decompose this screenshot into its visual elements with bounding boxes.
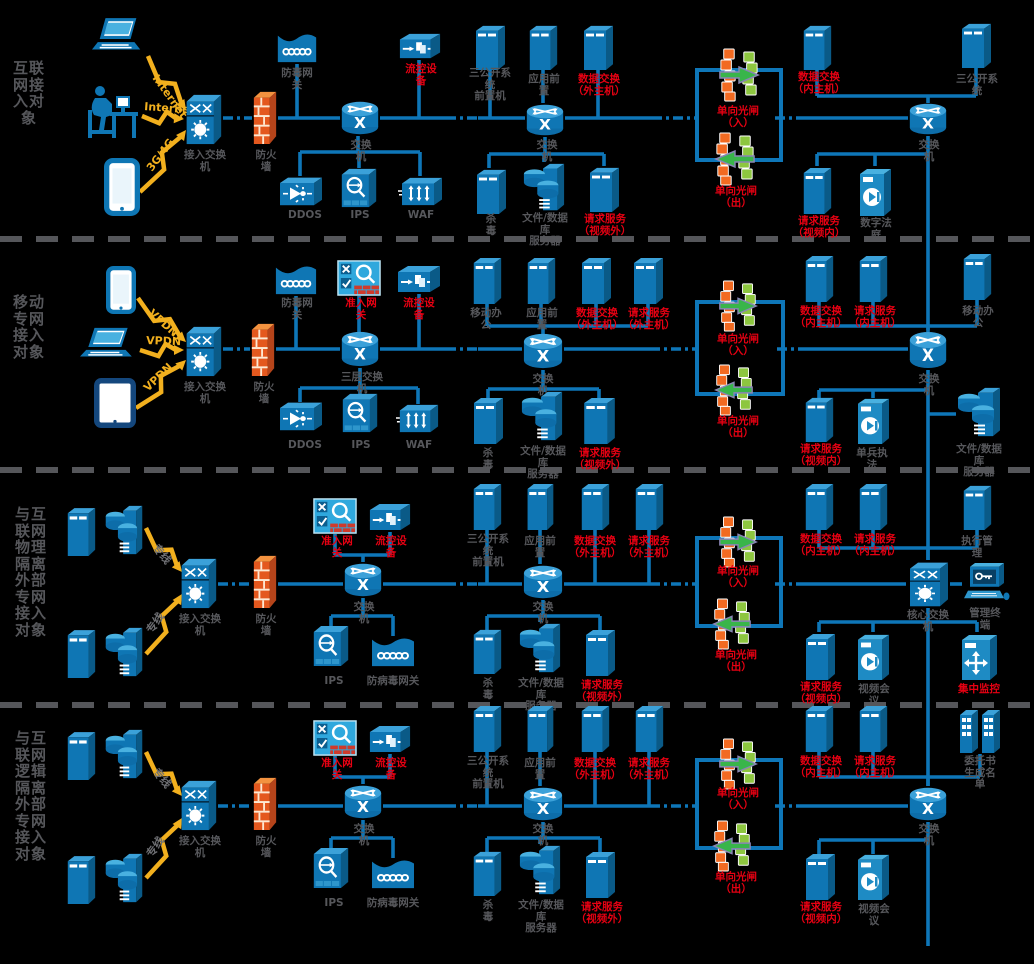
switch-2c-label: 交换机 [914,374,944,397]
server-icon [470,256,504,304]
access-switch-4 [178,778,218,832]
db-server-1-label: 文件/数据库服务器 [514,213,576,248]
tablet-2 [94,378,136,428]
flowctl-icon [368,724,412,754]
twinserver-icon [958,708,1002,754]
one-way-gate-out-2 [714,364,754,416]
one-way-gate-out-3-label: 单向光闸（出） [698,650,774,673]
server-request-out-2-label: 请求服务（外主机） [614,308,684,331]
media-icon [854,852,892,900]
router-icon: X [343,562,383,598]
server-data-exchange-out-1-label: 数据交换（外主机） [564,74,634,97]
phone-1 [104,158,140,216]
one-way-gate-in-2-label: 单向光闸（入） [700,334,776,357]
server-request-in-4-label: 请求服务（内主机） [840,756,910,779]
firewall-icon [250,322,276,376]
router-icon: X [908,330,948,370]
server-icon [64,854,98,904]
server-mobile-office-r-2-label: 移动办公 [956,306,1000,329]
server-data-exchange-in-4 [802,704,836,752]
media-icon [854,396,892,444]
switch-1a: X [340,100,380,136]
router-icon: X [522,332,564,370]
server-request-in-4 [856,704,890,752]
db-server-4-label: 文件/数据库服务器 [510,900,572,935]
server-antivirus-4 [470,850,504,896]
server-icon [856,482,890,530]
dbserver-icon [104,504,144,558]
laptop-2 [80,326,138,368]
server-data-exchange-out-4 [578,704,612,752]
server-app-front-3 [524,482,556,530]
server-icon [578,482,612,530]
access-switch-4-label: 接入交换机 [172,836,228,859]
workstation-user-1 [88,84,142,142]
ips-1-label: IPS [348,210,372,222]
svg-text:X: X [922,800,934,818]
server-icon [470,482,504,530]
server-icon [856,704,890,752]
server-icon [578,704,612,752]
firewall-1-label: 防火墙 [248,150,284,173]
server-data-exchange-out-1 [580,24,616,70]
flow-control-4 [368,724,412,754]
server-antivirus-3-label: 杀毒 [480,678,496,701]
router-icon: X [525,103,565,137]
firewall-1 [252,90,278,144]
one-way-gate-in-1-label: 单向光闸（入） [700,106,776,129]
access-switch-3-label: 接入交换机 [172,614,228,637]
router-icon: X [340,100,380,136]
flowctl-icon [398,32,442,60]
server-icon [64,628,98,678]
server-app-front-4 [524,704,556,752]
media-server-digital-court-1-label: 数字法庭 [854,218,898,241]
firewall-4 [252,776,278,830]
svg-text:X: X [354,114,366,132]
server-request-out-3-label: 请求服务（外主机） [614,536,684,559]
ips-4-label: IPS [322,898,346,910]
firewall-icon [252,90,278,144]
one-way-gate-out-1 [714,132,756,186]
server-app-front-1-label: 应用前置 [522,74,566,97]
server-app-front-2 [524,256,558,304]
server-request-video-in-3-label: 请求服务（视频内） [786,682,856,705]
server-icon [524,704,556,752]
media-server-digital-court-1 [856,166,894,216]
gateout-icon [714,132,756,186]
server-icon [960,484,994,530]
server-icon [526,24,560,70]
laptop-1 [92,16,146,62]
server-icon [856,254,890,302]
server-icon [582,850,618,898]
laptop-icon [80,326,138,368]
server-b-3 [64,628,98,678]
server-data-exchange-in-1-label: 数据交换（内主机） [784,72,854,95]
svg-text:X: X [357,798,369,816]
server-data-exchange-in-2 [802,254,836,302]
monitorbox-icon [958,632,1000,680]
media-server-video-conf-3 [854,632,892,680]
dbserver-icon [104,852,144,906]
server-icon [524,256,558,304]
ddos-1 [278,175,324,207]
svg-text:X: X [922,345,934,365]
server-icon [580,24,616,70]
db-server-a-3 [104,504,144,558]
av-gateway-1-label: 防毒网关 [272,68,322,91]
server-request-video-out-2 [580,396,618,444]
server-mobile-office-2-label: 移动办公 [464,308,508,331]
server-icon [630,256,666,304]
one-way-gate-out-4 [712,820,752,872]
server-icon [802,396,836,442]
server-icon [580,396,618,444]
one-way-gate-out-2-label: 单向光闸（出） [700,416,776,439]
server-icon [802,482,836,530]
server-data-exchange-in-1 [800,24,834,70]
dbserver-icon [518,622,562,676]
server-icon [64,730,98,780]
admgw-icon [313,720,357,756]
server-antivirus-1-label: 杀毒 [483,214,499,237]
flow-control-4-label: 流控设备 [366,758,416,781]
svg-text:X: X [537,577,550,595]
router-icon: X [522,564,564,600]
access-switch-2-label: 接入交换机 [177,382,233,405]
router-icon: X [340,330,380,368]
db-server-1 [522,162,566,214]
server-request-out-4-label: 请求服务（外主机） [614,758,684,781]
svg-text:X: X [354,344,366,363]
media-server-solo-enforce-2-label: 单兵执法 [850,448,894,471]
one-way-gate-in-2 [718,280,758,332]
aswitch-icon [183,92,223,146]
av-gateway-4 [370,856,416,890]
flow-control-1 [398,32,442,60]
gatein-icon [718,48,760,102]
server-icon [802,852,838,900]
switch-3a: X [343,562,383,598]
avgw-icon [370,856,416,890]
aswitch-icon [178,556,218,610]
ddos-1-label: DDOS [288,210,316,222]
gatein-icon [718,738,758,790]
one-way-gate-out-1-label: 单向光闸（出） [698,186,774,209]
phone-icon [104,158,140,216]
dbserver-icon [104,728,144,782]
waf-2 [396,402,440,434]
waf-1-label: WAF [406,210,436,222]
server-request-video-in-2 [802,396,836,442]
db-server-b-3 [104,626,144,680]
server-request-video-out-3-label: 请求服务（视频外） [566,680,638,703]
ddos-2-label: DDOS [288,440,316,452]
ips-3 [312,624,350,668]
firewall-2 [250,322,276,376]
db-server-4 [518,844,562,898]
one-way-gate-in-1 [718,48,760,102]
server-b-4 [64,854,98,904]
server-icon [470,396,506,444]
tablet-icon [94,378,136,428]
server-icon [802,254,836,302]
server-request-in-3-label: 请求服务（内主机） [840,534,910,557]
server-antivirus-1 [473,168,509,214]
av-gateway-4-label: 防病毒网关 [356,898,430,910]
gatein-icon [718,516,758,568]
waf-icon [398,175,444,207]
router-icon: X [343,784,383,820]
server-icon [473,168,509,214]
server-sgk-front-3-label: 三公开系统前置机 [462,534,514,569]
server-app-front-2-label: 应用前置 [520,308,564,331]
av-gateway-3-label: 防病毒网关 [356,676,430,688]
central-monitor-3-label: 集中监控 [950,684,1008,696]
avgw-icon [370,634,416,668]
access-switch-3 [178,556,218,610]
server-request-video-out-4 [582,850,618,898]
one-way-gate-in-4 [718,738,758,790]
server-icon [472,24,508,70]
av-gateway-2-label: 防毒网关 [272,298,322,321]
media-server-video-conf-4-label: 视频会议 [852,904,896,927]
server-icon [632,482,666,530]
server-icon [960,252,994,300]
switch-4a: X [343,784,383,820]
media-server-solo-enforce-2 [854,396,892,444]
one-way-gate-in-3 [718,516,758,568]
zone-label-internet: 互联网接入对象 [10,60,48,126]
server-request-out-3 [632,482,666,530]
server-app-front-3-label: 应用前置 [518,536,562,559]
server-icon [802,632,838,680]
one-way-gate-out-3 [712,598,752,650]
dbserver-icon [520,390,564,444]
core-switch-3-label: 核心交换机 [898,610,958,633]
phone-2 [106,266,136,314]
firewall-2-label: 防火墙 [246,382,282,405]
aswitch-icon [178,778,218,832]
svg-text:X: X [537,346,550,365]
one-way-gate-in-3-label: 单向光闸（入） [700,566,776,589]
coreswitch-icon [906,560,950,608]
server-icon [802,704,836,752]
firewall-4-label: 防火墙 [248,836,284,859]
core-switch-3 [906,560,950,608]
flowctl-icon [368,502,412,532]
switch-1b: X [525,103,565,137]
switch-2b: X [522,332,564,370]
ddos-2 [278,400,324,432]
server-a-3 [64,506,98,556]
server-request-video-out-1-label: 请求服务（视频外） [570,214,640,237]
access-switch-1-label: 接入交换机 [177,150,233,173]
server-antivirus-3 [470,628,504,674]
flow-control-1-label: 流控设备 [396,64,446,87]
flow-control-2 [396,264,442,294]
dbserver-icon [518,844,562,898]
switch-4c-label: 交换机 [914,824,944,847]
ips-2 [341,392,379,434]
server-request-out-4 [632,704,666,752]
server-request-video-in-4 [802,852,838,900]
db-server-r-2 [956,386,1002,440]
gateout-icon [712,820,752,872]
gatein-icon [718,280,758,332]
svg-text:X: X [357,576,369,594]
dbserver-icon [956,386,1002,440]
server-mobile-office-r-2 [960,252,994,300]
flowctl-icon [396,264,442,294]
admgw-icon [313,498,357,534]
flow-control-3-label: 流控设备 [366,536,416,559]
server-request-video-out-4-label: 请求服务（视频外） [566,902,638,925]
db-server-b-4 [104,852,144,906]
admission-gateway-2-label: 准入网关 [338,298,384,321]
server-sgk-front-3 [470,482,504,530]
server-request-in-2-label: 请求服务（内主机） [840,306,910,329]
server-request-video-in-3 [802,632,838,680]
server-antivirus-2-label: 杀毒 [480,448,496,471]
server-request-in-2 [856,254,890,302]
router-icon: X [908,102,948,136]
avgw-icon [276,30,318,64]
central-monitor-3 [958,632,1000,680]
terminal-icon [962,562,1010,602]
server-icon [800,24,834,70]
zone-label-physical-isolated: 与互联网物理隔离外部专网接入对象 [12,506,50,638]
firewall-icon [252,776,278,830]
switch-4c: X [908,786,948,822]
server-app-front-1 [526,24,560,70]
server-icon [582,628,618,676]
server-a-4 [64,730,98,780]
ips-icon [312,624,350,668]
server-sgk-front-4-label: 三公开系统前置机 [462,756,514,791]
zone-label-mobile-vpn: 移动专网接入对象 [10,294,48,360]
server-mobile-office-2 [470,256,504,304]
mgmt-terminal-3 [962,562,1010,602]
avgw-icon [274,262,318,296]
admission-gateway-4 [313,720,357,756]
phone-icon [106,266,136,314]
waf-1 [398,175,444,207]
ips-4 [312,846,350,890]
gateout-icon [714,364,754,416]
aswitch-icon [183,324,223,378]
server-request-out-2 [630,256,666,304]
server-icon [470,704,504,752]
media-icon [854,632,892,680]
server-request-video-in-1 [800,166,834,214]
waf-icon [396,402,440,434]
switch-3a-label: 交换机 [349,602,379,625]
twin-server-4 [958,708,1002,754]
network-topology-diagram: InternetInternet3G/4GVPDNVPDNVPDN专线专线专线专… [0,0,1034,964]
admission-gateway-3 [313,498,357,534]
l3-switch-2: X [340,330,380,368]
server-sgk-1 [958,22,994,68]
flow-control-2-label: 流控设备 [394,298,444,321]
server-request-video-in-1-label: 请求服务（视频内） [784,216,854,239]
gateout-icon [712,598,752,650]
switch-1b-label: 交换机 [532,140,562,163]
ips-icon [312,846,350,890]
access-switch-1 [183,92,223,146]
laptop-icon [92,16,146,62]
waf-2-label: WAF [404,440,434,452]
server-data-exchange-in-3 [802,482,836,530]
access-switch-2 [183,324,223,378]
server-icon [586,166,622,212]
server-request-video-out-1 [586,166,622,212]
svg-text:X: X [539,116,551,133]
one-way-gate-out-4-label: 单向光闸（出） [698,872,774,895]
switch-2c: X [908,330,948,370]
svg-text:X: X [537,799,550,817]
admgw-icon [337,260,381,296]
server-request-video-in-2-label: 请求服务（视频内） [786,444,856,467]
mgmt-terminal-3-label: 管理终端 [958,608,1012,631]
firewall-3-label: 防火墙 [248,614,284,637]
switch-4b: X [522,786,564,822]
media-server-video-conf-4 [854,852,892,900]
router-icon: X [908,786,948,822]
server-antivirus-4-label: 杀毒 [480,900,496,923]
dbserver-icon [522,162,566,214]
uplink-arrow-label: 3G/4G [144,136,177,174]
av-gateway-1 [276,30,318,64]
admission-gateway-4-label: 准入网关 [314,758,360,781]
person-icon [88,84,142,142]
server-antivirus-2 [470,396,506,444]
server-data-exchange-out-3 [578,482,612,530]
server-sgk-front-1 [472,24,508,70]
flow-control-3 [368,502,412,532]
server-icon [632,704,666,752]
server-icon [64,506,98,556]
admission-gateway-3-label: 准入网关 [314,536,360,559]
server-icon [800,166,834,214]
admission-gateway-2 [337,260,381,296]
twin-server-4-label: 委托书生成名单 [950,756,1010,791]
ips-3-label: IPS [322,676,346,688]
ips-icon [341,392,379,434]
media-icon [856,166,894,216]
av-gateway-2 [274,262,318,296]
svg-text:X: X [922,115,934,132]
ddos-icon [278,400,324,432]
db-server-3 [518,622,562,676]
db-server-2 [520,390,564,444]
switch-4a-label: 交换机 [349,824,379,847]
ips-2-label: IPS [349,440,373,452]
dbserver-icon [104,626,144,680]
av-gateway-3 [370,634,416,668]
ddos-icon [278,175,324,207]
switch-3b: X [522,564,564,600]
uplink-arrow-label: VPDN [141,361,175,395]
db-server-a-4 [104,728,144,782]
server-data-exchange-out-2 [578,256,614,304]
switch-1c: X [908,102,948,136]
server-request-in-3 [856,482,890,530]
server-icon [470,628,504,674]
server-app-front-4-label: 应用前置 [518,758,562,781]
zone-label-logical-isolated: 与互联网逻辑隔离外部专网接入对象 [12,730,50,862]
